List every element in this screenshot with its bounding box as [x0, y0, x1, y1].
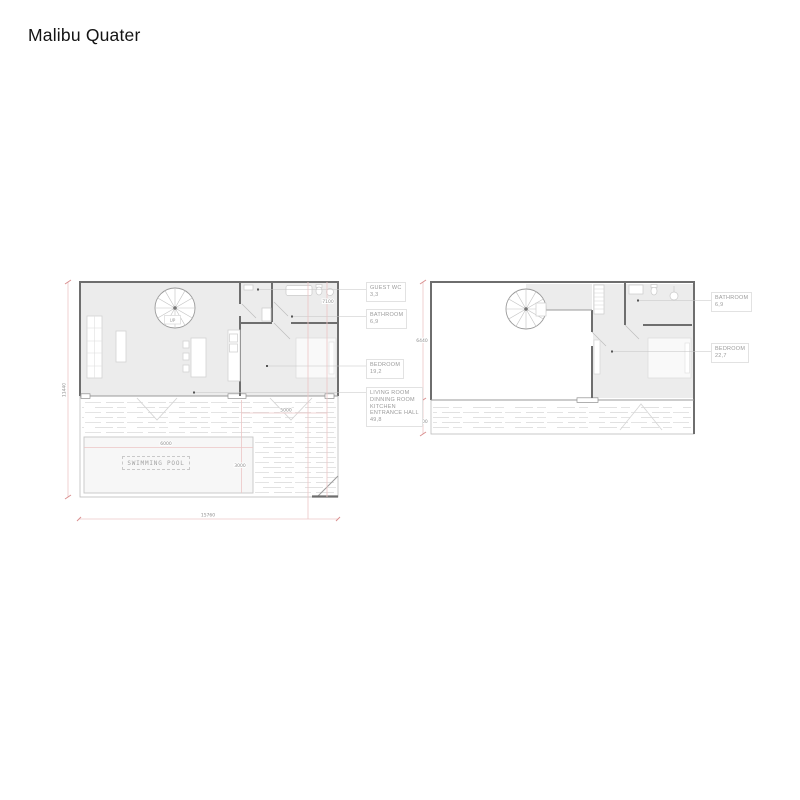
room-name: BEDROOM	[715, 346, 745, 353]
room-name: GUEST WC	[370, 285, 402, 292]
facade-post	[577, 398, 598, 403]
room-name: BATHROOM	[715, 295, 748, 302]
stair-landing-steps	[594, 285, 604, 314]
kitchen-sink	[230, 334, 238, 342]
room-name: BATHROOM	[370, 312, 403, 319]
chair	[183, 353, 189, 360]
stair-landing	[536, 303, 546, 316]
washbasin	[670, 292, 678, 300]
room-area: 6,9	[370, 319, 403, 326]
dim-pool-depth: 3000	[234, 463, 246, 469]
wardrobe	[594, 340, 600, 374]
stair-direction-label: UP	[170, 318, 176, 323]
dining-table	[191, 338, 206, 377]
room-name: ENTRANCE HALL	[370, 410, 419, 417]
room-area: 19,2	[370, 369, 400, 376]
dim-ground-terrace: 5000	[280, 408, 292, 414]
room-name: KITCHEN	[370, 404, 419, 411]
room-area: 6,9	[715, 302, 748, 309]
dim-upper-height: 6440	[416, 338, 428, 344]
spiral-staircase-upper	[506, 289, 546, 329]
bed-pillow	[329, 342, 334, 374]
room-label-bedroom: BEDROOM 19,2	[366, 359, 404, 379]
bed-pillow-upper	[685, 343, 690, 373]
room-label-upper-bedroom: BEDROOM 22,7	[711, 343, 749, 363]
terrace-decking	[82, 400, 336, 435]
room-area: 22,7	[715, 353, 745, 360]
toilet	[651, 287, 657, 295]
chair	[183, 365, 189, 372]
floor-plan-sheet: Malibu Quater	[0, 0, 800, 800]
dim-ground-interior: 7100	[322, 299, 334, 305]
bed-upper	[648, 338, 691, 378]
room-label-living: LIVING ROOM DINNING ROOM KITCHEN ENTRANC…	[366, 387, 423, 427]
dim-pool-width: 6000	[160, 441, 172, 447]
toilet	[316, 287, 322, 295]
ground-floor-plan: UP	[62, 280, 367, 521]
room-area: 3,3	[370, 292, 402, 299]
vanity	[629, 285, 643, 294]
swimming-pool-label: SWIMMING POOL	[122, 456, 190, 470]
terrace-decking-side	[255, 437, 336, 493]
toilet-tank	[651, 285, 657, 288]
room-label-guest-wc: GUEST WC 3,3	[366, 282, 406, 302]
chair	[183, 341, 189, 348]
coffee-table	[116, 331, 126, 362]
dim-ground-height: 11440	[62, 383, 68, 397]
room-label-upper-bathroom: BATHROOM 6,9	[711, 292, 752, 312]
upper-floor-plan: 6440 1800	[416, 280, 711, 436]
room-label-bathroom: BATHROOM 6,9	[366, 309, 407, 329]
facade-post	[325, 394, 334, 399]
wc-basin	[244, 285, 253, 290]
dim-ground-width: 15760	[201, 513, 215, 519]
facade-post	[81, 394, 90, 399]
facade-post	[228, 394, 246, 399]
shower	[262, 308, 271, 321]
upper-terrace-decking	[433, 403, 691, 431]
stair-center-post	[173, 306, 177, 310]
kitchen-hob	[230, 344, 238, 352]
room-name: LIVING ROOM	[370, 390, 419, 397]
room-area: 49,8	[370, 417, 419, 424]
room-name: DINNING ROOM	[370, 397, 419, 404]
spiral-staircase: UP	[155, 288, 195, 328]
room-name: BEDROOM	[370, 362, 400, 369]
